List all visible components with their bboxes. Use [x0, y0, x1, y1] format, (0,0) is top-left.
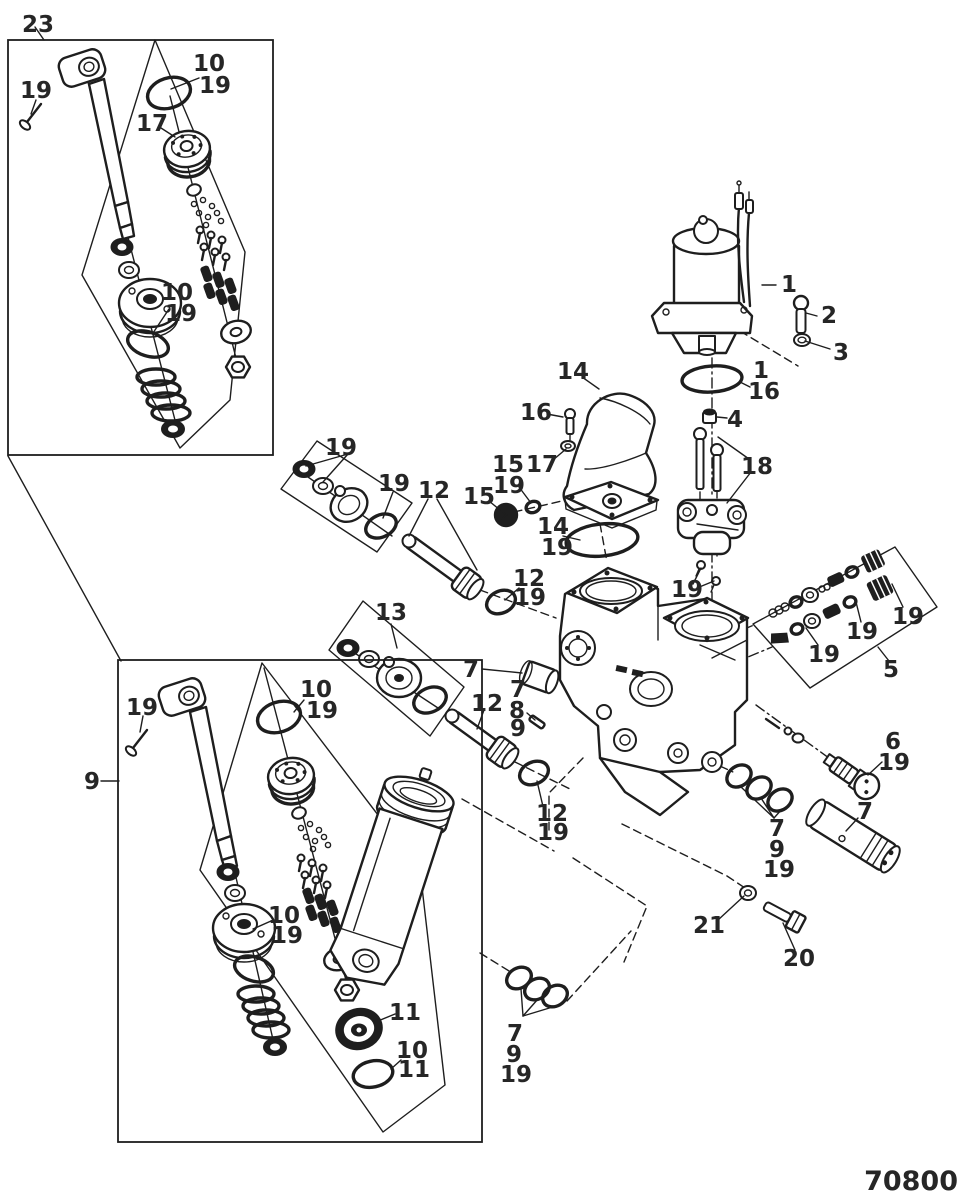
callout-3: 3 — [833, 340, 849, 366]
callout-19: 19 — [493, 473, 525, 499]
callout-20: 20 — [783, 946, 815, 972]
callout-16: 16 — [748, 379, 780, 405]
diagram-page: 23 19 10 19 17 10 19 1 2 3 1 16 4 14 16 … — [0, 0, 964, 1198]
callout-19: 19 — [500, 1062, 532, 1088]
piston — [213, 904, 275, 962]
fill-plug-15 — [495, 504, 517, 526]
bleed-screw — [18, 104, 41, 132]
callout-9: 9 — [510, 716, 526, 742]
bleed-screw — [124, 730, 147, 758]
callout-19: 19 — [808, 642, 840, 668]
callout-2: 2 — [821, 303, 837, 329]
callout-5: 5 — [883, 657, 899, 683]
cross-pin-7 — [803, 797, 904, 875]
bolt-washer-20-21 — [740, 886, 806, 933]
callout-12: 12 — [418, 478, 450, 504]
callout-7: 7 — [857, 799, 873, 825]
cylinder-end-cap-11 — [330, 1003, 387, 1056]
callout-7: 7 — [463, 657, 479, 683]
reservoir-gasket — [565, 520, 640, 559]
callout-19: 19 — [514, 585, 546, 611]
exploded-parts-diagram: 23 19 10 19 17 10 19 1 2 3 1 16 4 14 16 … — [0, 0, 964, 1198]
callout-11: 11 — [398, 1057, 430, 1083]
callout-19: 19 — [20, 78, 52, 104]
callout-11: 11 — [389, 1000, 421, 1026]
piston-cap — [162, 128, 214, 180]
callout-19: 19 — [378, 471, 410, 497]
manual-release-valve-6 — [766, 719, 884, 804]
bolt-2-head — [794, 296, 808, 310]
callout-19: 19 — [165, 301, 197, 327]
motor-mount-hardware — [794, 296, 810, 346]
callout-19: 19 — [878, 750, 910, 776]
oring-set-bottom — [503, 963, 572, 1011]
callout-19: 19 — [199, 73, 231, 99]
callout-19: 19 — [126, 695, 158, 721]
callout-16: 16 — [520, 400, 552, 426]
callout-19: 19 — [846, 619, 878, 645]
callout-19: 19 — [892, 604, 924, 630]
callout-19: 19 — [541, 535, 573, 561]
callout-23: 23 — [22, 12, 54, 38]
callout-4: 4 — [727, 407, 743, 433]
callout-19: 19 — [537, 820, 569, 846]
callout-13: 13 — [375, 600, 407, 626]
manifold-body — [560, 568, 748, 815]
oring-12-19-lower — [516, 757, 552, 790]
callout-9: 9 — [84, 769, 100, 795]
callout-14: 14 — [557, 359, 589, 385]
motor-assembly — [652, 181, 753, 355]
oring-10-11 — [351, 1057, 396, 1091]
callout-19: 19 — [325, 435, 357, 461]
washer-17 — [561, 441, 575, 451]
callout-19: 19 — [271, 923, 303, 949]
pump-assembly — [678, 500, 746, 554]
trim-cylinder — [324, 758, 461, 992]
callout-17: 17 — [526, 452, 558, 478]
callout-12: 12 — [471, 691, 503, 717]
coupler-4 — [703, 409, 716, 424]
oring-set-right — [723, 760, 797, 815]
callout-21: 21 — [693, 913, 725, 939]
callout-19: 19 — [671, 577, 703, 603]
spring — [238, 986, 289, 1038]
callout-19: 19 — [306, 698, 338, 724]
callout-18: 18 — [741, 454, 773, 480]
callout-17: 17 — [136, 111, 168, 137]
drawing-number: 70800 — [864, 1166, 958, 1197]
piston-cap — [266, 755, 318, 807]
callout-1: 1 — [781, 272, 797, 298]
callout-15: 15 — [463, 484, 495, 510]
callout-19: 19 — [763, 857, 795, 883]
motor-wire — [747, 213, 750, 306]
